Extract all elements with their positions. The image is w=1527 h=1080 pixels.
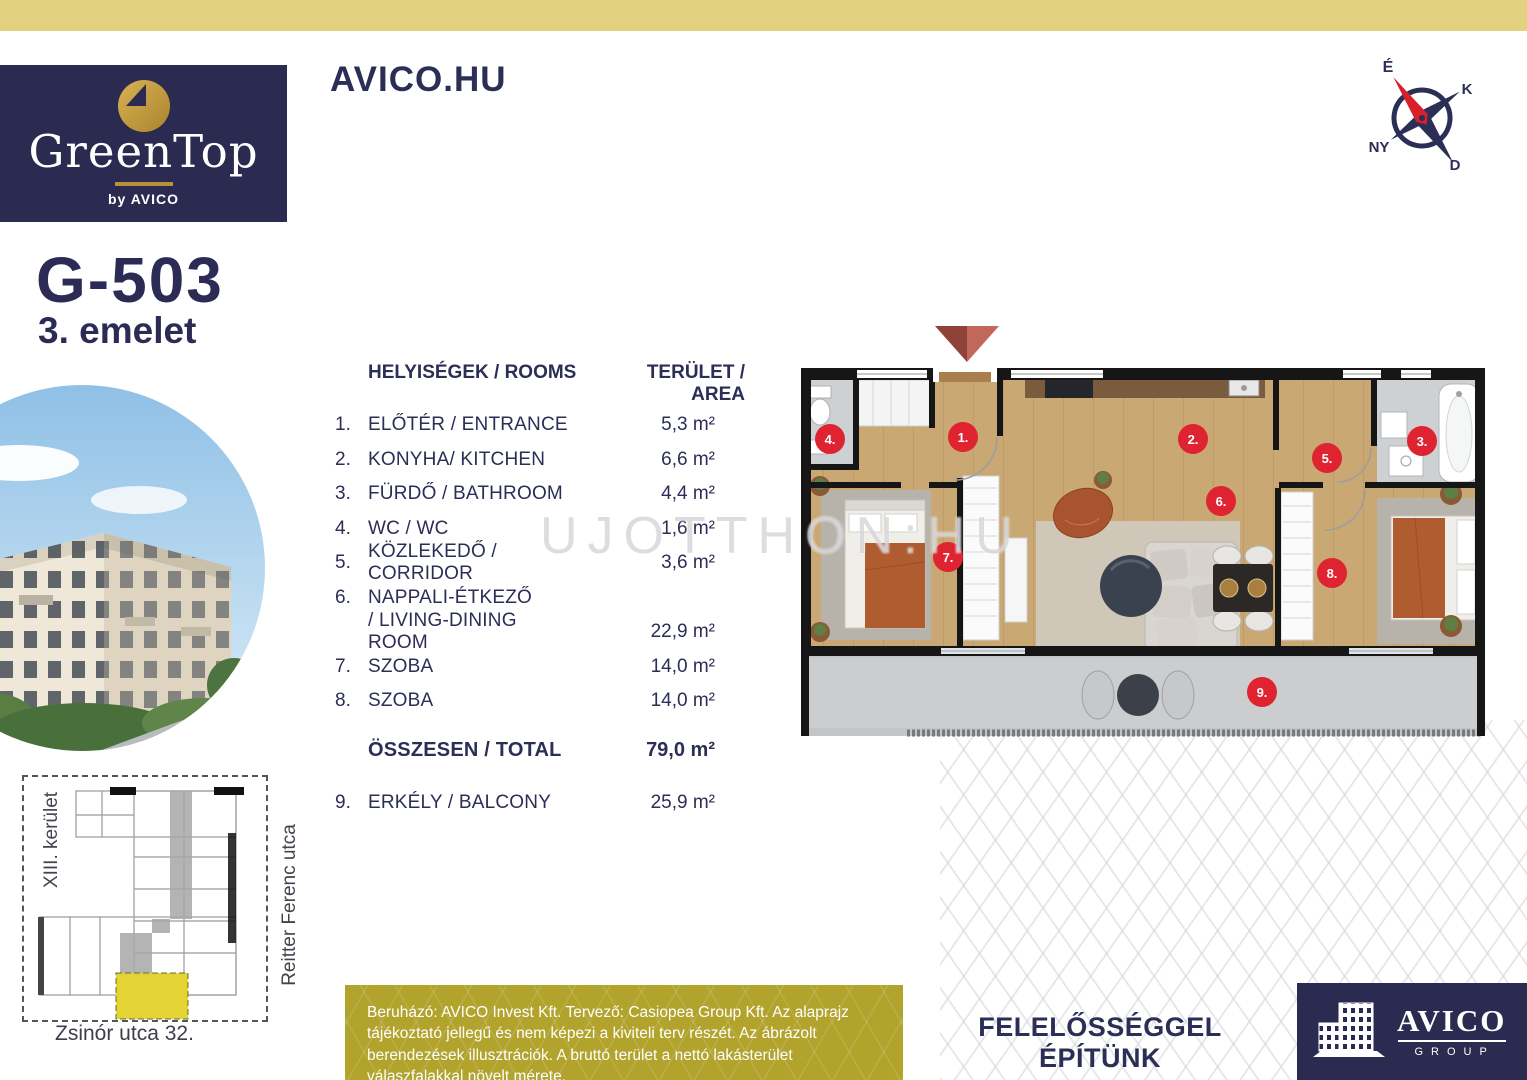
- room-name: FÜRDŐ / BATHROOM: [368, 483, 575, 505]
- avico-group-logo: AVICO GROUP: [1297, 983, 1527, 1080]
- badge-3: 3.: [1417, 434, 1428, 449]
- badge-8: 8.: [1327, 566, 1338, 581]
- room-row: 7. SZOBA 14,0 m²: [335, 650, 745, 685]
- brochure-page: GreenTop by AVICO AVICO.HU É K D NY G-50…: [0, 0, 1527, 1080]
- building-photo: [0, 385, 265, 751]
- room-area: 14,0 m²: [575, 690, 745, 712]
- badge-2: 2.: [1188, 432, 1199, 447]
- balcony-area: 25,9 m²: [575, 792, 745, 814]
- total-label: ÖSSZESEN / TOTAL: [368, 739, 575, 762]
- badge-6: 6.: [1216, 494, 1227, 509]
- badge-5: 5.: [1322, 451, 1333, 466]
- room-number: 2.: [335, 449, 368, 471]
- balcony-set: [1082, 671, 1194, 719]
- compass-south-label: D: [1450, 157, 1461, 174]
- room-number: 6.: [335, 587, 368, 609]
- balcony-number: 9.: [335, 792, 368, 814]
- room-name: / LIVING-DINING ROOM: [368, 610, 575, 654]
- logo-divider: [115, 182, 173, 186]
- room-name: ELŐTÉR / ENTRANCE: [368, 414, 575, 436]
- balcony-row: 9. ERKÉLY / BALCONY 25,9 m²: [335, 786, 745, 821]
- district-label: XIII. kerület: [41, 792, 63, 888]
- unit-floor: 3. emelet: [38, 312, 196, 349]
- room-number: 8.: [335, 690, 368, 712]
- badge-9: 9.: [1257, 685, 1268, 700]
- compass-west-label: NY: [1369, 139, 1390, 156]
- compass-icon: É K D NY: [1357, 50, 1487, 180]
- balcony-name: ERKÉLY / BALCONY: [368, 792, 575, 814]
- compass-north-label: É: [1383, 57, 1394, 76]
- slogan: FELELŐSSÉGGEL ÉPÍTÜNK: [920, 1012, 1280, 1074]
- rooms-table-header: HELYISÉGEK / ROOMS TERÜLET / AREA: [335, 362, 745, 386]
- room-area: 14,0 m²: [575, 656, 745, 678]
- room-number: 3.: [335, 483, 368, 505]
- street-label: Reitter Ferenc utca: [279, 824, 301, 986]
- rooms-column-header: HELYISÉGEK / ROOMS: [368, 362, 595, 386]
- rooms-table: HELYISÉGEK / ROOMS TERÜLET / AREA 1. ELŐ…: [335, 362, 745, 820]
- badge-4: 4.: [825, 432, 836, 447]
- avico-brand: AVICO: [1397, 1005, 1506, 1036]
- room-number: 4.: [335, 518, 368, 540]
- highlighted-unit: [116, 973, 188, 1019]
- room-area: 5,3 m²: [575, 414, 745, 436]
- logo-byline: by AVICO: [108, 191, 179, 207]
- room-number: 1.: [335, 414, 368, 436]
- area-column-header: TERÜLET / AREA: [595, 362, 745, 386]
- room-name: SZOBA: [368, 656, 575, 678]
- total-row: ÖSSZESEN / TOTAL 79,0 m²: [335, 733, 745, 769]
- compass-east-label: K: [1462, 81, 1473, 98]
- room-row: 2. KONYHA/ KITCHEN 6,6 m²: [335, 443, 745, 478]
- watermark: UJOTTHON:HU: [540, 506, 1023, 566]
- total-area: 79,0 m²: [575, 739, 745, 762]
- avico-group-label: GROUP: [1415, 1046, 1495, 1058]
- top-accent-band: [0, 0, 1527, 31]
- room-row: 1. ELŐTÉR / ENTRANCE 5,3 m²: [335, 408, 745, 443]
- greentop-logo: GreenTop by AVICO: [0, 65, 287, 222]
- entrance-arrow: [935, 326, 999, 362]
- greentop-wordmark: GreenTop: [28, 129, 258, 174]
- disclaimer-box: Beruházó: AVICO Invest Kft. Tervező: Cas…: [345, 985, 903, 1080]
- avico-divider: [1398, 1040, 1506, 1042]
- room-name: NAPPALI-ÉTKEZŐ: [368, 587, 575, 609]
- room-area: 4,4 m²: [575, 483, 745, 505]
- room-row: / LIVING-DINING ROOM 22,9 m²: [335, 615, 745, 650]
- coffee-table: [1100, 555, 1162, 617]
- room-number: 5.: [335, 552, 368, 574]
- room-name: SZOBA: [368, 690, 575, 712]
- room-name: KONYHA/ KITCHEN: [368, 449, 575, 471]
- badge-1: 1.: [958, 430, 969, 445]
- room-area: 6,6 m²: [575, 449, 745, 471]
- room-area: 22,9 m²: [575, 621, 745, 643]
- address-label: Zsinór utca 32.: [55, 1022, 194, 1046]
- avico-building-icon: [1309, 997, 1389, 1067]
- room-number: 7.: [335, 656, 368, 678]
- bed-room8: [1391, 512, 1483, 624]
- room-row: 8. SZOBA 14,0 m²: [335, 684, 745, 719]
- unit-code: G-503: [36, 248, 224, 312]
- website-link[interactable]: AVICO.HU: [330, 60, 507, 100]
